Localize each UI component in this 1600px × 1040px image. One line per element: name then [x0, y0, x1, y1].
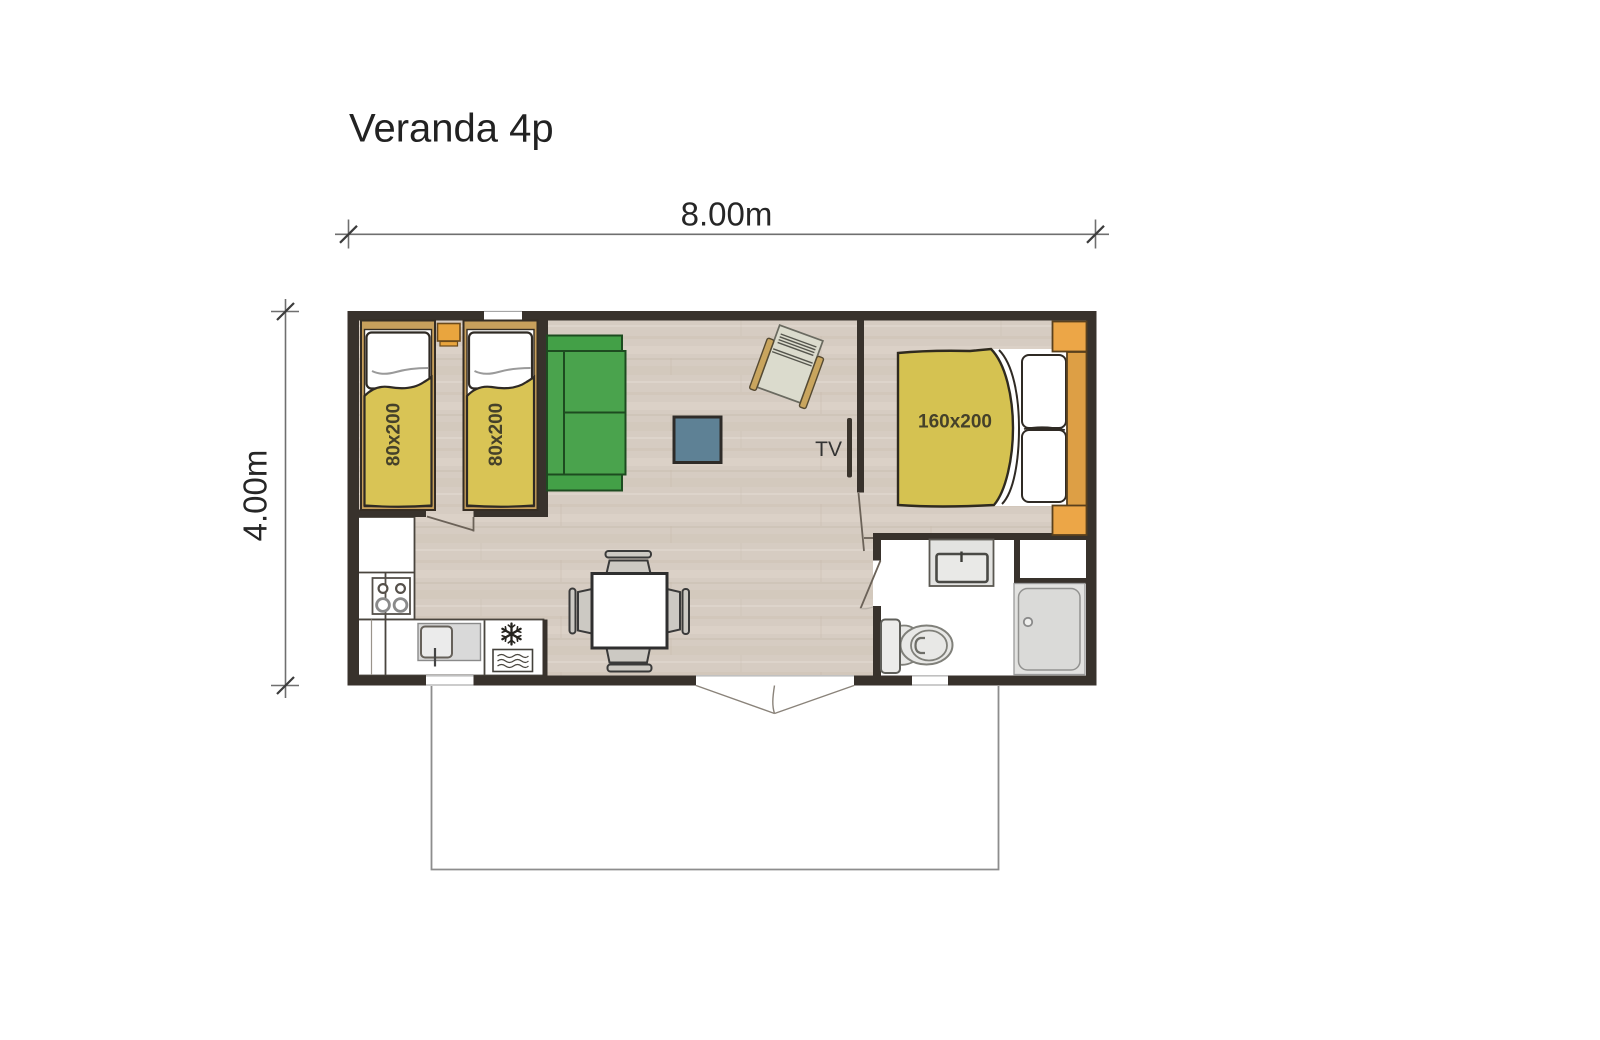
svg-text:160x200: 160x200	[918, 412, 992, 433]
svg-text:80x200: 80x200	[486, 403, 507, 466]
svg-text:4.00m: 4.00m	[237, 450, 274, 542]
svg-text:Veranda 4p: Veranda 4p	[349, 107, 554, 151]
svg-text:8.00m: 8.00m	[681, 196, 773, 233]
svg-text:TV: TV	[815, 438, 842, 461]
svg-text:80x200: 80x200	[384, 403, 405, 466]
